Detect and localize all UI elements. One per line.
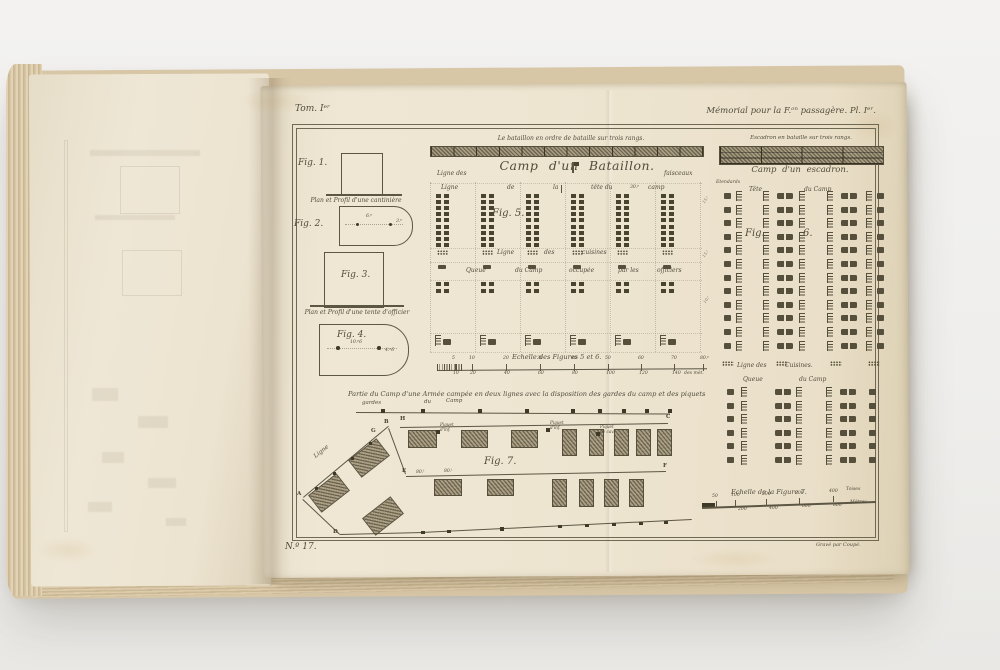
- tent-pair-mark: [777, 275, 793, 281]
- camp-block: [434, 479, 462, 496]
- fig4-pole-dot: [377, 346, 381, 350]
- tent-mark: [877, 234, 884, 240]
- horse-line-mark: [763, 245, 769, 255]
- horse-line-mark: [799, 341, 805, 351]
- tent-mark: [727, 443, 734, 449]
- street-line: [475, 182, 476, 352]
- tent-row-mark: [481, 289, 494, 293]
- show-through-mark: [166, 518, 186, 526]
- horse-line-mark: [763, 273, 769, 283]
- scale-tick-label: 100: [606, 372, 615, 377]
- horse-line-mark: [763, 286, 769, 296]
- camp-head-line-label: Ligne: [441, 185, 458, 191]
- fig2-axis: [345, 224, 403, 225]
- horse-line-mark: [736, 191, 742, 201]
- tent-row-mark: [481, 212, 494, 216]
- scale-tick-label: 140: [672, 372, 681, 377]
- tent-row-mark: [616, 231, 629, 235]
- tent-mark: [877, 247, 884, 253]
- scale-comb: [437, 364, 463, 371]
- tent-pair-mark: [841, 343, 857, 349]
- picket-square: [612, 523, 616, 527]
- battalion-line-bar: [430, 146, 704, 157]
- tent-row-mark: [481, 282, 494, 286]
- show-through-mark: [138, 416, 168, 428]
- scale-tick: [455, 364, 456, 371]
- tent-mark: [727, 389, 734, 395]
- scale-tick-label: 70: [671, 357, 677, 362]
- horse-line-mark: [796, 387, 802, 397]
- camp-block: [636, 429, 651, 456]
- kitchen-dots: [868, 361, 880, 366]
- fig34-caption: Plan et Profil d'une tente d'officier: [288, 310, 426, 316]
- horse-line-mark: [796, 428, 802, 438]
- horse-line-mark: [741, 441, 747, 451]
- tent-row-mark: [571, 225, 584, 229]
- horse-line-mark: [866, 191, 872, 201]
- tent-row-mark: [571, 206, 584, 210]
- horse-line-mark: [827, 191, 833, 201]
- horse-line-mark: [736, 300, 742, 310]
- piquet-label: d'inf.: [440, 428, 451, 432]
- horse-line-mark: [741, 401, 747, 411]
- show-through-mark: [102, 452, 124, 463]
- squadron-camp-title: Camp d'un escadron.: [730, 166, 870, 175]
- tent-row-mark: [571, 218, 584, 222]
- fig4-label: Fig. 4.: [337, 331, 366, 340]
- tent-row-mark: [436, 243, 449, 247]
- horse-line-mark: [763, 191, 769, 201]
- tent-pair-mark: [775, 403, 791, 409]
- tent-row-mark: [481, 206, 494, 210]
- tent-pair-mark: [841, 234, 857, 240]
- scale-tick-label: 60: [638, 357, 644, 362]
- tent-pair-mark: [841, 288, 857, 294]
- fig12-caption: Plan et Profil d'une cantinière: [292, 198, 420, 204]
- tent-mark: [869, 416, 876, 422]
- tent-row-mark: [526, 282, 539, 286]
- fig7-corner-letter: E: [402, 469, 406, 475]
- guard-post-square: [351, 457, 354, 460]
- tent-row-mark: [526, 212, 539, 216]
- camp-head-line-label: de: [507, 185, 514, 191]
- scale-tick-label: 50: [712, 495, 718, 500]
- horse-line-mark: [796, 401, 802, 411]
- horse-line-mark: [827, 327, 833, 337]
- scale-tick-label: 600: [802, 505, 811, 510]
- camp-guards-label: du: [424, 400, 431, 406]
- tent-mark: [869, 403, 876, 409]
- street-line: [565, 182, 566, 352]
- plate-margin-title: Mémorial pour la F.ᵒⁿ passagère. Pl. Iᵉʳ…: [620, 107, 876, 116]
- show-through-figure: [120, 166, 180, 214]
- scale-tick: [574, 364, 575, 371]
- fig3-label: Fig. 3.: [341, 271, 370, 280]
- fig2-dimension: 6.ᵖ: [366, 215, 372, 220]
- show-through-mark: [95, 215, 175, 220]
- street-line: [655, 182, 656, 352]
- tent-row-mark: [661, 206, 674, 210]
- tent-row-mark: [436, 237, 449, 241]
- fig7-corner-letter: F: [663, 464, 667, 470]
- scale-tick: [766, 499, 767, 505]
- tent-mark: [727, 457, 734, 463]
- horse-line-mark: [796, 414, 802, 424]
- horse-line-mark: [866, 218, 872, 228]
- scale-tick: [472, 364, 473, 371]
- tent-row-mark: [526, 194, 539, 198]
- horse-line-mark: [866, 313, 872, 323]
- tent-row-mark: [436, 218, 449, 222]
- scale-tick: [833, 496, 834, 502]
- baggage-line-mark: [570, 335, 576, 346]
- scale56-title: Echelle des Figures 5 et 6.: [512, 354, 601, 361]
- tent-pair-mark: [777, 343, 793, 349]
- horse-line-mark: [799, 232, 805, 242]
- tent-row-mark: [571, 289, 584, 293]
- officer-tent-mark: [578, 339, 586, 345]
- kitchen-dots: [572, 250, 583, 255]
- camp-block: [614, 429, 629, 456]
- horse-line-mark: [799, 205, 805, 215]
- tent-row-mark: [526, 237, 539, 241]
- scale-tick-label: 30: [537, 357, 543, 362]
- piquet-label: de cav.: [600, 430, 615, 434]
- horse-line-mark: [866, 286, 872, 296]
- tent-row-mark: [436, 282, 449, 286]
- camp-rear-label: par les: [618, 268, 639, 274]
- tent-row-mark: [661, 282, 674, 286]
- scale-tick: [506, 364, 507, 371]
- tent-mark: [724, 343, 731, 349]
- fig7-corner-letter: A: [297, 492, 301, 498]
- tent-mark: [724, 288, 731, 294]
- tent-row-mark: [661, 243, 674, 247]
- officer-tent-mark: [443, 339, 451, 345]
- tent-pair-mark: [841, 302, 857, 308]
- tent-mark: [877, 207, 884, 213]
- guard-post-square: [369, 442, 372, 445]
- tent-mark: [724, 234, 731, 240]
- tent-pair-mark: [777, 288, 793, 294]
- scale-tick-label: 80: [572, 372, 578, 377]
- horse-line-mark: [736, 286, 742, 296]
- tent-pair-mark: [841, 193, 857, 199]
- horse-line-mark: [736, 232, 742, 242]
- tent-pair-mark: [777, 247, 793, 253]
- plate-number: N.º 17.: [285, 543, 317, 552]
- guard-post-square: [381, 409, 385, 413]
- show-through-figure: [122, 250, 182, 296]
- officer-tent-mark: [623, 339, 631, 345]
- officer-tent-mark: [663, 265, 671, 269]
- squadron-kitchens-label: Ligne des: [737, 363, 767, 369]
- horse-line-mark: [866, 327, 872, 337]
- camp-block: [629, 479, 644, 507]
- squadron-rear-label: du Camp: [799, 377, 826, 383]
- tent-mark: [877, 302, 884, 308]
- camp-grid-line: [430, 333, 702, 334]
- camp-block: [487, 479, 514, 496]
- horse-line-mark: [799, 245, 805, 255]
- camp-block: [511, 430, 538, 448]
- show-through-frame: [64, 140, 68, 532]
- tent-pair-mark: [777, 220, 793, 226]
- horse-line-mark: [736, 218, 742, 228]
- tent-mark: [727, 403, 734, 409]
- tent-row-mark: [481, 231, 494, 235]
- tent-pair-mark: [841, 329, 857, 335]
- horse-line-mark: [826, 428, 832, 438]
- tent-row-mark: [526, 243, 539, 247]
- fig7-caption: Partie du Camp d'une Armée campée en deu…: [348, 391, 688, 398]
- horse-line-mark: [799, 286, 805, 296]
- tent-pair-mark: [841, 315, 857, 321]
- tent-row-mark: [661, 231, 674, 235]
- foxing-stain: [36, 536, 100, 564]
- scale-tick-label: 10: [453, 372, 459, 377]
- tent-row-mark: [571, 212, 584, 216]
- horse-line-mark: [763, 327, 769, 337]
- scale-tick-label: 100: [731, 494, 740, 499]
- tent-row-mark: [481, 218, 494, 222]
- tent-row-mark: [526, 206, 539, 210]
- camp-grid-line: [430, 248, 702, 249]
- tent-mark: [877, 193, 884, 199]
- standard-flag: [574, 162, 579, 166]
- tent-row-mark: [616, 206, 629, 210]
- tent-pair-mark: [840, 457, 856, 463]
- fig3-tent-profile: [324, 252, 384, 308]
- piquet-label: d'inf.: [550, 426, 561, 430]
- kitchen-dots: [776, 361, 788, 366]
- horse-line-mark: [799, 218, 805, 228]
- horse-line-mark: [799, 259, 805, 269]
- fig2-label: Fig. 2.: [294, 220, 323, 229]
- tent-row-mark: [481, 200, 494, 204]
- camp-block: [408, 430, 437, 448]
- tent-pair-mark: [775, 443, 791, 449]
- guard-post-square: [478, 409, 482, 413]
- camp-block: [562, 429, 577, 456]
- officer-tent-mark: [618, 265, 626, 269]
- officer-tent-mark: [668, 339, 676, 345]
- horse-line-mark: [763, 232, 769, 242]
- tent-row-mark: [436, 206, 449, 210]
- tent-row-mark: [661, 200, 674, 204]
- tent-mark: [724, 247, 731, 253]
- scale-tick-label: 20: [470, 372, 476, 377]
- tent-row-mark: [661, 218, 674, 222]
- tent-pair-mark: [840, 403, 856, 409]
- picket-square: [585, 524, 589, 528]
- fig7-corner-letter: H: [400, 417, 405, 423]
- scale-tick: [716, 501, 717, 507]
- piquet-square: [436, 430, 440, 434]
- tent-pair-mark: [841, 220, 857, 226]
- tent-row-mark: [661, 237, 674, 241]
- tent-row-mark: [571, 237, 584, 241]
- kitchens-line-label: Ligne: [497, 250, 514, 256]
- picket-square: [639, 522, 643, 526]
- street-line: [520, 182, 521, 352]
- scale-tick: [540, 364, 541, 371]
- tent-row-mark: [616, 237, 629, 241]
- tent-pair-mark: [841, 275, 857, 281]
- scale-tick-label: 20: [503, 357, 509, 362]
- tent-row-mark: [481, 194, 494, 198]
- squadron-head-label: Tête: [749, 187, 762, 193]
- guard-post-square: [333, 472, 336, 475]
- scale-tick-label: 120: [639, 372, 648, 377]
- tent-mark: [877, 329, 884, 335]
- horse-line-mark: [827, 313, 833, 323]
- tent-pair-mark: [775, 389, 791, 395]
- tent-row-mark: [436, 225, 449, 229]
- kitchen-dots: [527, 250, 538, 255]
- tent-mark: [869, 457, 876, 463]
- camp-block: [552, 479, 567, 507]
- tent-pair-mark: [840, 443, 856, 449]
- horse-line-mark: [736, 245, 742, 255]
- horse-line-mark: [827, 232, 833, 242]
- scale-tick-label: 400: [829, 490, 838, 495]
- tent-mark: [724, 207, 731, 213]
- tent-row-mark: [526, 218, 539, 222]
- tent-pair-mark: [777, 234, 793, 240]
- horse-line-mark: [827, 259, 833, 269]
- faisceaux-line-label: Ligne des: [437, 171, 467, 177]
- fig1-label: Fig. 1.: [298, 159, 327, 168]
- squadron-order-caption: Escadron en bataille sur trois rangs.: [718, 136, 884, 142]
- standards-label: Etendards: [716, 181, 740, 186]
- baggage-line-mark: [615, 335, 621, 346]
- show-through-mark: [90, 150, 200, 156]
- tent-row-mark: [526, 200, 539, 204]
- guard-post-square: [668, 409, 672, 413]
- horse-line-mark: [799, 300, 805, 310]
- camp-grid-line: [430, 280, 702, 281]
- battalion-order-caption: Le bataillon en ordre de bataille sur tr…: [438, 136, 704, 142]
- officer-tent-mark: [533, 339, 541, 345]
- street-width-dimension: 30.ᵖ: [630, 186, 639, 191]
- horse-line-mark: [866, 300, 872, 310]
- horse-line-mark: [866, 205, 872, 215]
- show-through-mark: [88, 502, 112, 512]
- scale-tick-label: 400: [769, 507, 778, 512]
- tent-pair-mark: [777, 193, 793, 199]
- kitchen-dots: [617, 250, 628, 255]
- tent-row-mark: [616, 200, 629, 204]
- tent-mark: [727, 430, 734, 436]
- scale-tick-label: 5: [452, 357, 455, 362]
- show-through-mark: [92, 388, 118, 401]
- horse-line-mark: [736, 205, 742, 215]
- tent-row-mark: [661, 194, 674, 198]
- tent-row-mark: [616, 218, 629, 222]
- picket-square: [558, 525, 562, 529]
- scale-tick-label: 200: [762, 493, 771, 498]
- tent-mark: [877, 220, 884, 226]
- guard-post-square: [525, 409, 529, 413]
- street-line: [430, 182, 431, 352]
- fig7-corner-letter: G: [371, 429, 376, 435]
- officer-tent-mark: [573, 265, 581, 269]
- horse-line-mark: [736, 327, 742, 337]
- horse-line-mark: [796, 441, 802, 451]
- scale-unit-label: des mèt.: [684, 372, 704, 377]
- horse-line-mark: [741, 414, 747, 424]
- tent-row-mark: [616, 243, 629, 247]
- piquet-square: [546, 428, 550, 432]
- horse-line-mark: [799, 327, 805, 337]
- street-line: [610, 182, 611, 352]
- baggage-line-mark: [480, 335, 486, 346]
- fig3-ground-line: [310, 305, 404, 307]
- engraver-credit: Gravé par Coupé.: [816, 543, 861, 548]
- scale-tick: [703, 364, 704, 371]
- faisceaux-line-label: faisceaux: [664, 171, 693, 177]
- officer-tent-mark: [483, 265, 491, 269]
- horse-line-mark: [736, 313, 742, 323]
- street-line: [700, 182, 701, 352]
- tent-row-mark: [436, 200, 449, 204]
- horse-line-mark: [866, 232, 872, 242]
- guard-post-square: [571, 409, 575, 413]
- tent-row-mark: [436, 231, 449, 235]
- scale-tick-label: 80.ᵖ: [700, 357, 709, 362]
- horse-line-mark: [741, 455, 747, 465]
- horse-line-mark: [827, 218, 833, 228]
- horse-line-mark: [827, 205, 833, 215]
- fig1-ground-line: [326, 194, 402, 196]
- scale-tick: [641, 364, 642, 371]
- scale-tick-label: 10: [469, 357, 475, 362]
- tent-pair-mark: [840, 430, 856, 436]
- horse-line-mark: [763, 341, 769, 351]
- horse-line-mark: [799, 191, 805, 201]
- horse-line-mark: [736, 273, 742, 283]
- tent-pair-mark: [841, 207, 857, 213]
- tent-mark: [869, 443, 876, 449]
- guard-post-square: [645, 409, 649, 413]
- fig7-corner-letter: D: [333, 530, 338, 536]
- fig2-dimension: 3.ᵖ: [396, 220, 402, 225]
- tent-row-mark: [526, 225, 539, 229]
- tent-pair-mark: [775, 457, 791, 463]
- tent-row-mark: [661, 289, 674, 293]
- drummer-figure: [561, 185, 562, 193]
- fig7-corner-letter: B: [384, 420, 389, 426]
- tent-mark: [877, 261, 884, 267]
- horse-line-mark: [741, 428, 747, 438]
- fig4-dimension: 10.ᵖ6: [350, 341, 362, 346]
- tent-row-mark: [616, 225, 629, 229]
- tent-row-mark: [481, 243, 494, 247]
- camp-block: [461, 430, 488, 448]
- guard-post-square: [598, 409, 602, 413]
- fig2-tent-plan: [339, 206, 413, 246]
- tent-mark: [877, 343, 884, 349]
- squadron-line-bar: [719, 146, 884, 165]
- camp-grid-line: [430, 352, 702, 353]
- scale-unit-label: Toises: [846, 488, 860, 493]
- baggage-line-mark: [525, 335, 531, 346]
- camp-rear-label: occupée: [569, 268, 594, 274]
- scale-tick-label: 40: [504, 372, 510, 377]
- horse-line-mark: [826, 441, 832, 451]
- tent-mark: [877, 288, 884, 294]
